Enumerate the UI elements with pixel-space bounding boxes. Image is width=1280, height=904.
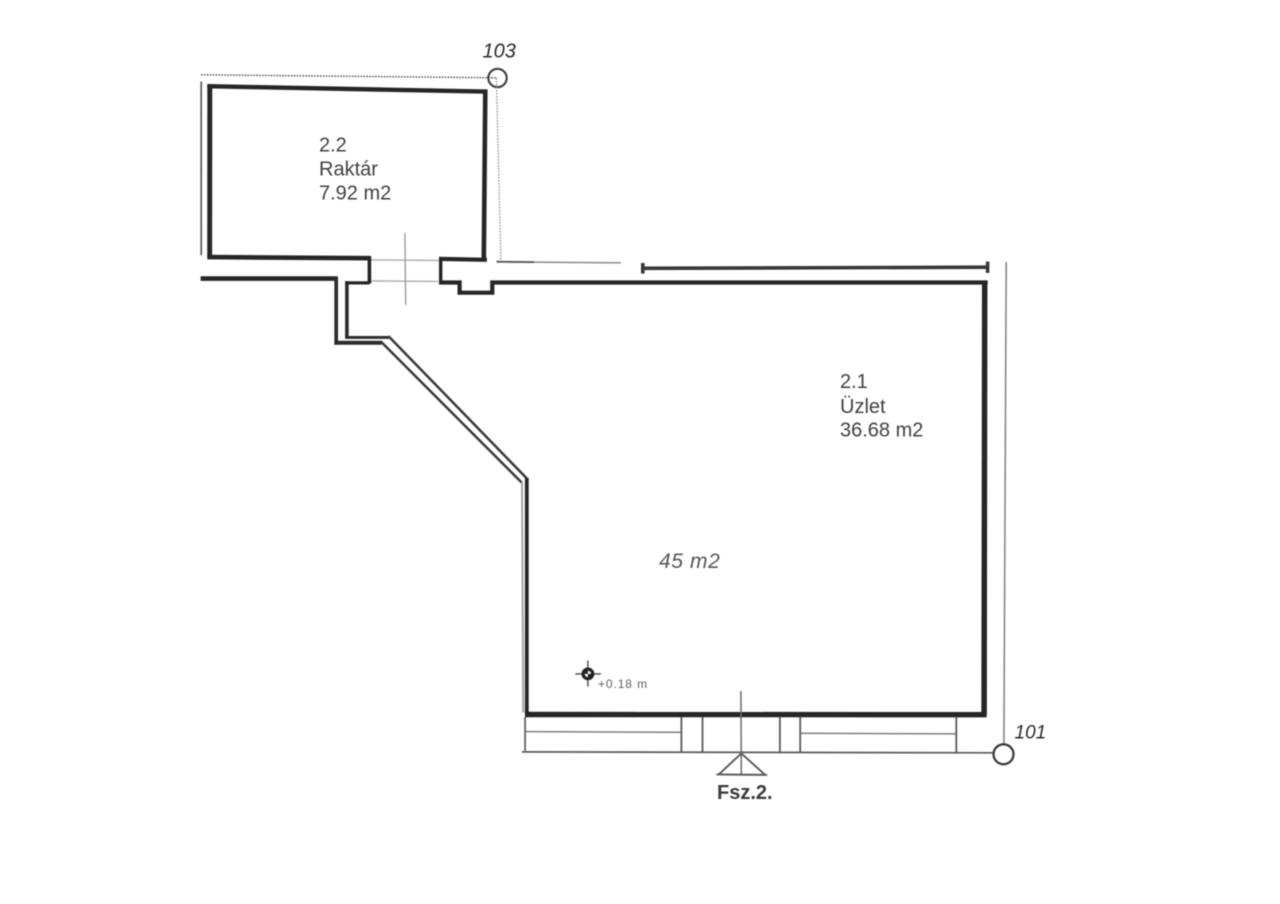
svg-text:7.92 m2: 7.92 m2 xyxy=(319,182,391,204)
svg-text:Raktár: Raktár xyxy=(319,159,378,181)
svg-text:+0.18 m: +0.18 m xyxy=(598,677,648,691)
svg-text:2.2: 2.2 xyxy=(319,135,347,157)
svg-text:2.1: 2.1 xyxy=(840,371,868,393)
svg-text:103: 103 xyxy=(483,41,516,63)
svg-text:101: 101 xyxy=(1015,723,1047,744)
svg-text:Fsz.2.: Fsz.2. xyxy=(717,782,773,804)
svg-text:Üzlet: Üzlet xyxy=(840,396,886,418)
svg-text:45 m2: 45 m2 xyxy=(659,550,720,573)
svg-text:36.68 m2: 36.68 m2 xyxy=(840,420,923,442)
